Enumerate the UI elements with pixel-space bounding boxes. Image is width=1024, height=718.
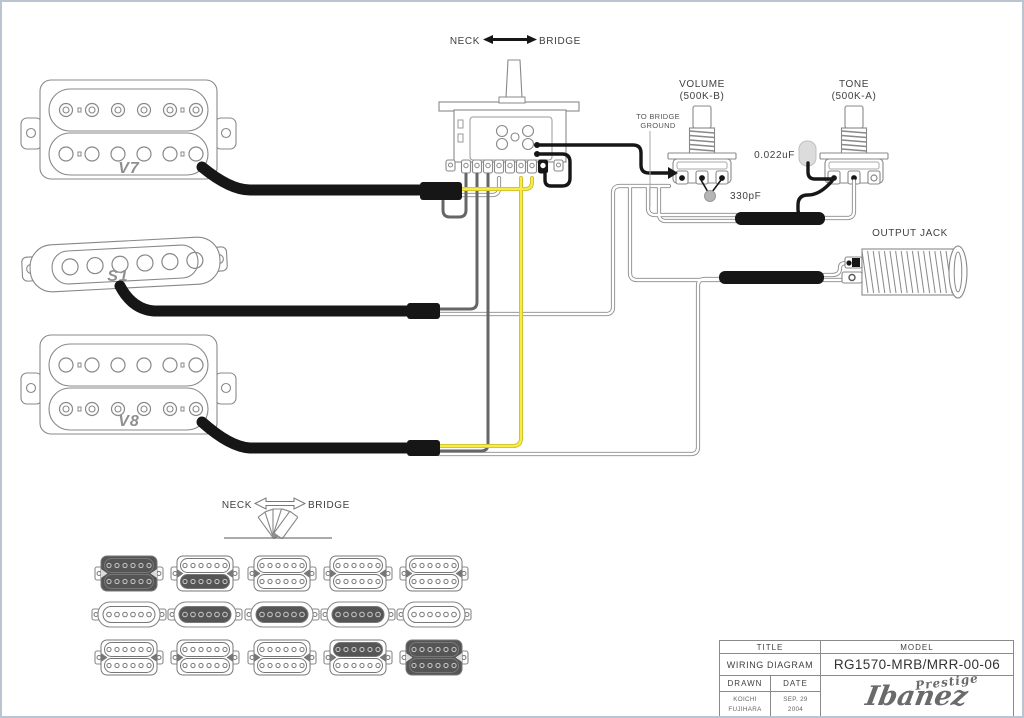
matrix-single-coil-cell <box>321 602 395 627</box>
ibanez-prestige-logo: Prestige Ibanez <box>821 676 1013 717</box>
matrix-humbucker-cell <box>400 556 468 591</box>
ibanez-wordmark: Ibanez <box>864 683 970 710</box>
matrix-single-coil-cell <box>397 602 471 627</box>
bridge-pickup-label: V8 <box>118 413 140 430</box>
pickup-selector-switch <box>439 60 579 173</box>
output-jack <box>842 246 967 298</box>
date-header: DATE <box>783 679 808 688</box>
matrix-humbucker-cell <box>324 640 392 675</box>
date-header-cell: DATE <box>771 676 821 692</box>
date-value-line2: 2004 <box>788 705 803 714</box>
bridge-ground-label-line1: TO BRIDGE <box>636 112 680 121</box>
model-header-cell: MODEL <box>821 641 1013 654</box>
matrix-humbucker-cell <box>248 556 316 591</box>
model-number: RG1570-MRB/MRR-00-06 <box>834 657 1000 672</box>
volume-label: VOLUME <box>679 79 725 90</box>
matrix-humbucker-cell <box>95 556 163 591</box>
bottom-bridge-label: BRIDGE <box>308 500 350 511</box>
matrix-humbucker-cell <box>400 640 468 675</box>
matrix-humbucker-cell <box>95 640 163 675</box>
wiring <box>120 141 854 456</box>
matrix-single-coil-cell <box>168 602 242 627</box>
tone-value-label: (500K-A) <box>832 91 877 102</box>
tone-pot <box>820 106 888 184</box>
neck-pickup-label: V7 <box>118 160 140 177</box>
model-header: MODEL <box>900 643 933 652</box>
drawn-by-name-line1: KOICHI <box>733 695 757 704</box>
brand-logo-cell: Prestige Ibanez <box>821 676 1013 717</box>
top-neck-label: NECK <box>450 36 480 47</box>
top-bridge-label: BRIDGE <box>539 36 581 47</box>
matrix-single-coil-cell <box>245 602 319 627</box>
matrix-humbucker-cell <box>248 640 316 675</box>
output-jack-label: OUTPUT JACK <box>872 228 948 239</box>
title-header-cell: TITLE <box>720 641 821 654</box>
matrix-humbucker-cell <box>171 556 239 591</box>
wiring-diagram-canvas: NECK BRIDGE V7 S1 V8 VOLUME (500K-B) TON… <box>2 2 1024 718</box>
drawn-value-cell: KOICHI FUJIHARA <box>720 692 771 717</box>
title-header: TITLE <box>757 643 784 652</box>
tone-capacitor-label: 0.022uF <box>754 150 795 161</box>
volume-value-label: (500K-B) <box>680 91 725 102</box>
wiring-diagram-page: NECK BRIDGE V7 S1 V8 VOLUME (500K-B) TON… <box>0 0 1024 718</box>
treble-bleed-capacitor-label: 330pF <box>730 191 761 202</box>
bottom-neck-label: NECK <box>222 500 252 511</box>
date-value-cell: SEP. 29 2004 <box>771 692 821 717</box>
treble-bleed-capacitor <box>705 191 716 202</box>
drawn-by-name-line2: FUJIHARA <box>728 705 761 714</box>
matrix-humbucker-cell <box>324 556 392 591</box>
bottom-direction-arrow <box>255 498 305 509</box>
top-direction-arrow <box>483 35 537 44</box>
title-block: TITLE MODEL WIRING DIAGRAM RG1570-MRB/MR… <box>719 640 1014 718</box>
date-value-line1: SEP. 29 <box>783 695 807 704</box>
tone-label: TONE <box>839 79 869 90</box>
model-value-cell: RG1570-MRB/MRR-00-06 <box>821 654 1013 676</box>
drawn-header: DRAWN <box>728 679 763 688</box>
bridge-ground-label-line2: GROUND <box>640 121 675 130</box>
matrix-humbucker-cell <box>171 640 239 675</box>
position-matrix <box>92 556 471 675</box>
document-title: WIRING DIAGRAM <box>727 660 813 670</box>
drawn-header-cell: DRAWN <box>720 676 771 692</box>
selector-direction-legend <box>224 509 332 539</box>
matrix-single-coil-cell <box>92 602 166 627</box>
title-value-cell: WIRING DIAGRAM <box>720 654 821 676</box>
